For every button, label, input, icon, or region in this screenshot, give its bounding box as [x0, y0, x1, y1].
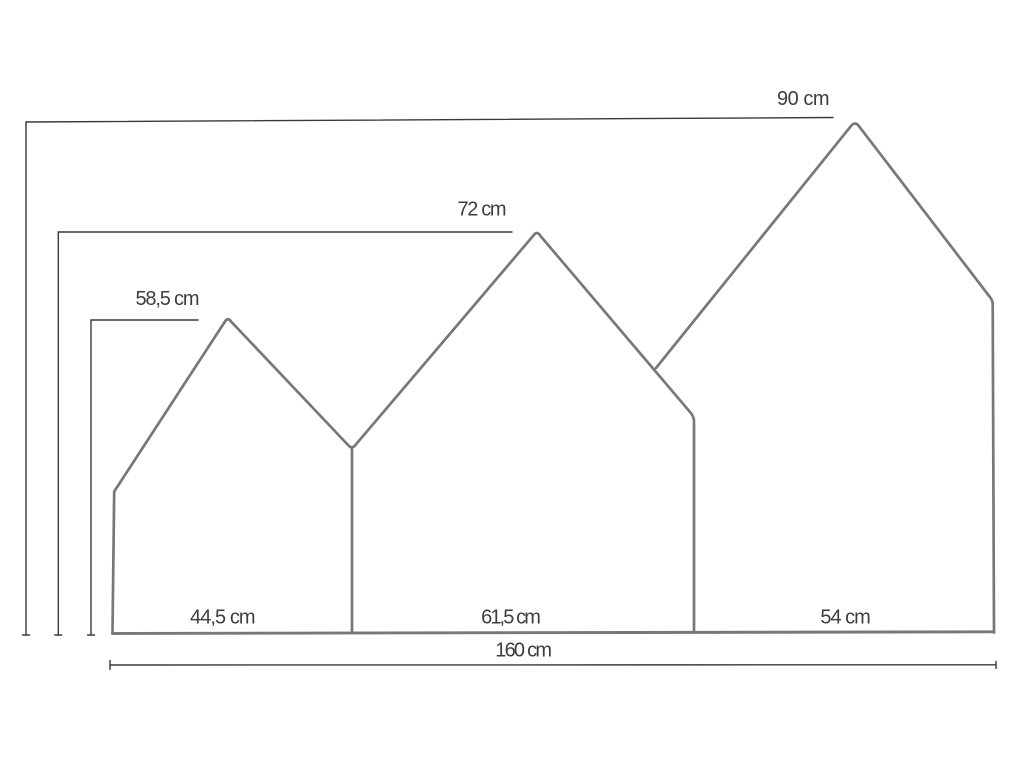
svg-text:72 cm: 72 cm [458, 199, 507, 221]
svg-text:44,5 cm: 44,5 cm [190, 606, 255, 628]
svg-text:54 cm: 54 cm [820, 606, 871, 628]
svg-text:58,5 cm: 58,5 cm [136, 288, 200, 310]
svg-text:61,5 cm: 61,5 cm [481, 606, 541, 628]
svg-text:160 cm: 160 cm [495, 639, 552, 661]
svg-text:90 cm: 90 cm [777, 88, 830, 110]
